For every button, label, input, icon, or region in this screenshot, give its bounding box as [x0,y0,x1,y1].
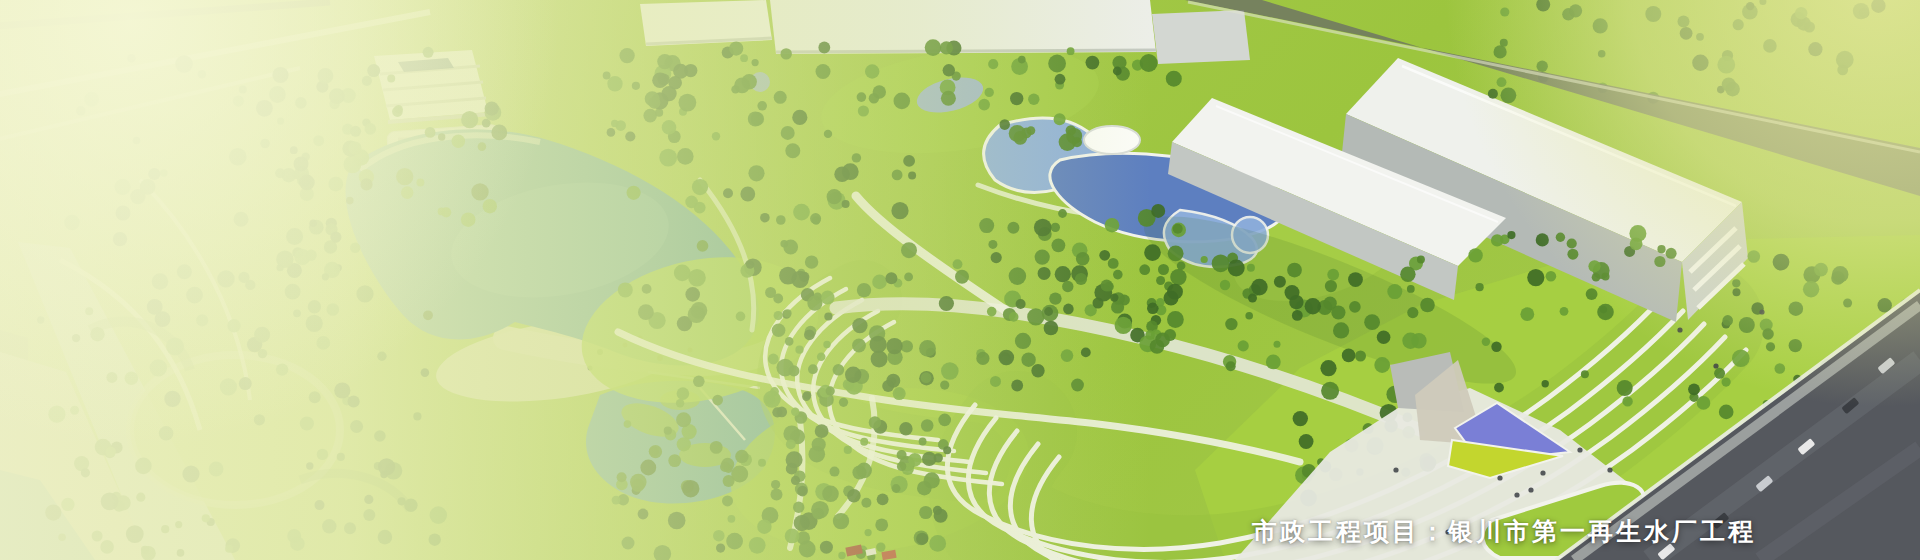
project-caption: 市政工程项目：银川市第一再生水厂工程 [1252,516,1756,546]
project-caption-text: 市政工程项目：银川市第一再生水厂工程 [1252,517,1756,545]
project-banner: 市政工程项目：银川市第一再生水厂工程 [0,0,1920,560]
aerial-rendering [0,0,1920,560]
haze-overlay [0,0,1920,560]
